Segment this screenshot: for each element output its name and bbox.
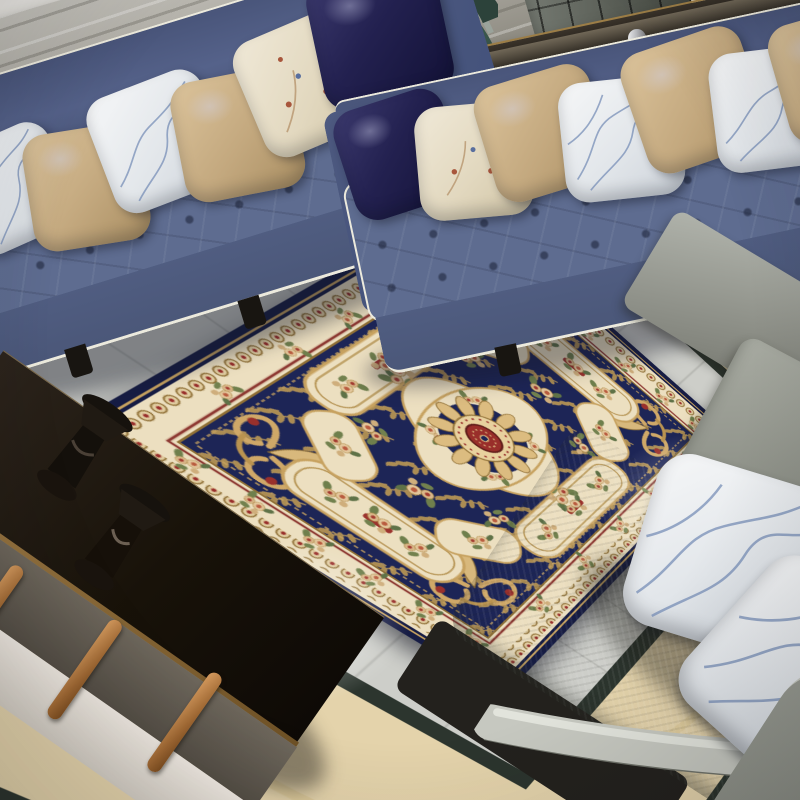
living-room-scene: Overhead view of a living room: navy-blu… [0, 0, 800, 800]
pillow-sheen [182, 84, 237, 129]
sofa-foot [494, 343, 522, 377]
pillow-sheen [319, 0, 379, 31]
pillow-sheen [34, 138, 86, 180]
sofa-foot [237, 295, 267, 330]
pillow-sheen [343, 108, 397, 155]
pillow-sheen [779, 23, 800, 72]
pillow-sheen [484, 84, 540, 132]
pillow-sheen [632, 49, 692, 101]
